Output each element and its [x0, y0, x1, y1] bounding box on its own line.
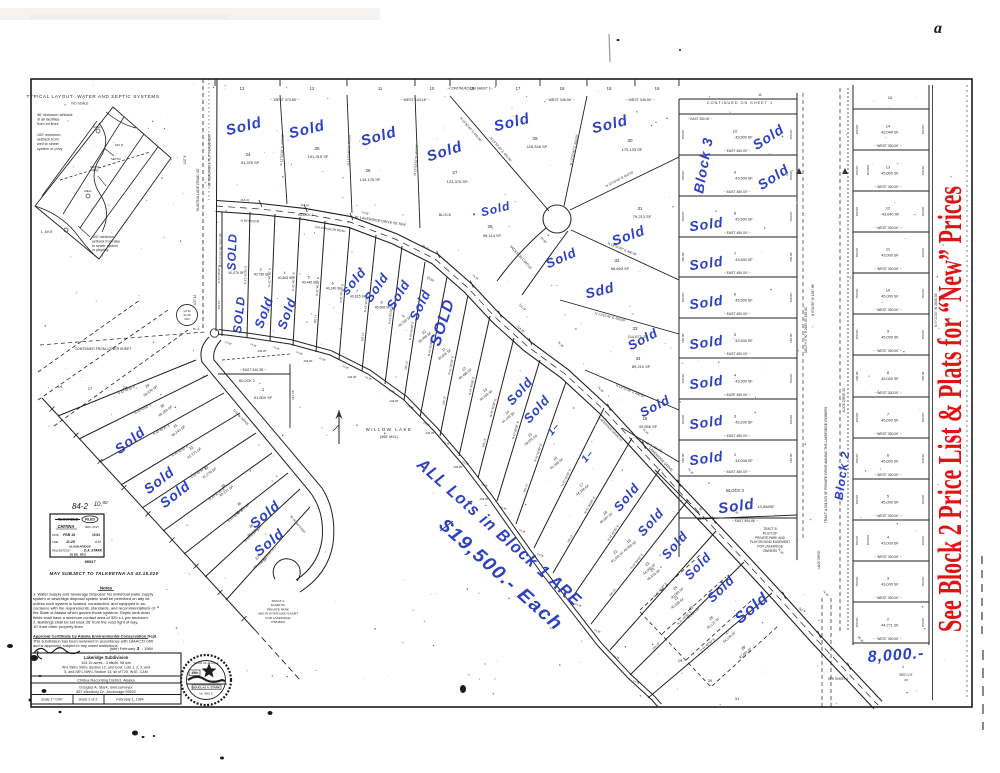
svg-text:~ EAST 450.00' ~: ~ EAST 450.00' ~ [687, 117, 712, 121]
svg-text:BLOCK: BLOCK [439, 213, 452, 217]
svg-text:17: 17 [516, 86, 521, 91]
svg-text:49,556 SF: 49,556 SF [639, 424, 658, 429]
svg-text:SEE LOT: SEE LOT [899, 673, 913, 677]
svg-text:150.00': 150.00' [855, 124, 859, 134]
svg-text:150.00': 150.00' [681, 292, 685, 302]
svg-text:-43,040 SF: -43,040 SF [881, 213, 900, 217]
svg-text:11: 11 [758, 93, 762, 97]
svg-text:~ WEST 300.00' ~: ~ WEST 300.00' ~ [874, 596, 902, 600]
svg-text:8: 8 [381, 300, 383, 304]
svg-text:40,756 SF: 40,756 SF [254, 273, 270, 277]
svg-text:CHITINA: CHITINA [58, 524, 75, 529]
svg-text:N 0°01'30" W 1287.88': N 0°01'30" W 1287.88' [811, 284, 815, 316]
svg-text:10: 10 [430, 86, 435, 91]
svg-text:29: 29 [532, 136, 538, 141]
svg-text:150.00': 150.00' [855, 288, 859, 298]
svg-text:~ WEST 300.00' ~: ~ WEST 300.00' ~ [874, 226, 902, 230]
svg-text:SEPTIC: SEPTIC [111, 157, 121, 161]
svg-text:99517: 99517 [84, 559, 96, 564]
svg-text:28: 28 [487, 224, 493, 229]
svg-text:TIME: TIME [52, 540, 58, 544]
svg-text:150.00': 150.00' [681, 170, 685, 180]
svg-text:~ WEST 143.18' ~: ~ WEST 143.18' ~ [400, 98, 429, 102]
svg-text:4: 4 [284, 271, 286, 275]
svg-text:43,008 SF: 43,008 SF [735, 459, 753, 463]
svg-text:5: 5 [308, 275, 310, 279]
svg-text:10.: 10. [94, 502, 102, 508]
svg-text:43,000 SF: 43,000 SF [881, 254, 899, 258]
svg-text:16: 16 [655, 86, 660, 91]
svg-text:BLOCK: BLOCK [866, 535, 870, 545]
svg-text:43,500 SF: 43,500 SF [735, 299, 753, 303]
svg-text:TRACT B: TRACT B [763, 527, 777, 531]
svg-text:150.00': 150.00' [681, 252, 685, 262]
svg-text:CONTINUED FROM LOWER SHEET: CONTINUED FROM LOWER SHEET [75, 347, 132, 351]
svg-text:150.00': 150.00' [855, 329, 859, 339]
svg-text:WELL: WELL [84, 189, 92, 193]
svg-text:~ EAST 540.38' ~: ~ EAST 540.38' ~ [240, 368, 267, 372]
svg-text:~ EAST 450.00' ~: ~ EAST 450.00' ~ [724, 434, 751, 438]
svg-text:150.00': 150.00' [855, 247, 859, 257]
svg-text:N 41°40'30" E: N 41°40'30" E [267, 268, 272, 287]
svg-text:14: 14 [58, 384, 63, 389]
svg-text:16: 16 [560, 86, 565, 91]
svg-text:10' from other property lines.: 10' from other property lines. [33, 624, 84, 629]
svg-text:10: 10 [886, 288, 891, 293]
svg-text:857 Westbury Dr., Anchorage 99: 857 Westbury Dr., Anchorage 99503 [76, 690, 135, 694]
svg-text:150.00': 150.00' [921, 329, 925, 339]
svg-text:45,000 SF: 45,000 SF [881, 377, 899, 381]
svg-text:150.00': 150.00' [921, 247, 925, 257]
svg-text:to sewer system: to sewer system [92, 244, 118, 248]
svg-text:150.00': 150.00' [855, 576, 859, 586]
svg-text:45,000 SF: 45,000 SF [881, 501, 899, 505]
svg-text:449.35': 449.35' [425, 431, 435, 435]
svg-text:BLOCK: BLOCK [866, 165, 870, 175]
svg-text:, 1984: , 1984 [142, 646, 154, 651]
svg-text:WILLOW LAKE: WILLOW LAKE [366, 427, 413, 432]
svg-text:44,771 SF: 44,771 SF [881, 624, 899, 628]
svg-text:~ EAST 450.00' ~: ~ EAST 450.00' ~ [724, 149, 751, 153]
svg-text:449.35': 449.35' [303, 359, 313, 363]
svg-text:38 BK. REG: 38 BK. REG [70, 553, 87, 557]
svg-text:A.M.: A.M. [95, 540, 102, 544]
svg-text:40,663 SF: 40,663 SF [278, 276, 294, 280]
svg-text:34: 34 [636, 356, 641, 361]
svg-text:MAY SUBJECT TO TALKEETNA AS 4: MAY SUBJECT TO TALKEETNA AS 43.15.020 [50, 571, 159, 576]
svg-text:150.00': 150.00' [921, 617, 925, 627]
svg-text:OWNERS: OWNERS [271, 620, 285, 624]
svg-text:7: 7 [356, 290, 358, 294]
svg-text:5, and NE¼ NW¼ Section 13; all: 5, and NE¼ NW¼ Section 13; all of T25, W… [64, 670, 147, 674]
svg-text:45,673 SF: 45,673 SF [763, 531, 778, 535]
svg-text:150.00': 150.00' [681, 211, 685, 221]
svg-text:OWNERS: OWNERS [763, 549, 777, 553]
svg-text:~ WEST 345.90' ~: ~ WEST 345.90' ~ [625, 98, 654, 102]
svg-text:104.19 acres - 3 tracts, 98 lo: 104.19 acres - 3 tracts, 98 lots [81, 661, 131, 665]
svg-text:LOT 12: LOT 12 [193, 294, 197, 305]
svg-text:SUSITNA LANE ROAD 30': SUSITNA LANE ROAD 30' [196, 168, 200, 211]
svg-text:100' minimum: 100' minimum [92, 235, 114, 239]
svg-text:DOUGLAS A. STARK: DOUGLAS A. STARK [192, 686, 220, 690]
svg-text:43,200 SF: 43,200 SF [735, 421, 753, 425]
svg-text:45,000 SF: 45,000 SF [881, 419, 899, 423]
svg-text:setback from lake: setback from lake [92, 239, 120, 243]
svg-text:118.50': 118.50' [300, 203, 310, 208]
svg-text:45,000 SF: 45,000 SF [881, 336, 899, 340]
svg-text:175,133 SF: 175,133 SF [622, 147, 643, 152]
svg-text:N 41°40'30" E: N 41°40'30" E [217, 265, 221, 284]
svg-text:13: 13 [886, 165, 891, 170]
svg-text:TANK: TANK [91, 168, 98, 172]
svg-text:27: 27 [88, 386, 93, 391]
svg-text:~ EAST 450.00' ~: ~ EAST 450.00' ~ [724, 470, 751, 474]
svg-text:150.00': 150.00' [681, 333, 685, 343]
svg-text:449.35': 449.35' [453, 465, 463, 469]
svg-text:150.00': 150.00' [789, 252, 793, 262]
svg-text:FEB 16: FEB 16 [63, 533, 76, 537]
svg-text:~ EAST 450.00' ~: ~ EAST 450.00' ~ [724, 271, 751, 275]
svg-text:30: 30 [627, 138, 633, 143]
svg-text:150.00': 150.00' [921, 165, 925, 175]
svg-text:32: 32 [614, 258, 620, 263]
svg-text:TRACT A 334,923 SF PRIVATE: TRACT A 334,923 SF PRIVATE DRIVE AMONG T… [824, 406, 828, 523]
svg-text:343.18': 343.18' [291, 390, 295, 400]
svg-text:98,114 SF: 98,114 SF [483, 233, 502, 238]
svg-text:84-2: 84-2 [72, 502, 89, 511]
svg-text:~ WEST 300.00' ~: ~ WEST 300.00' ~ [874, 637, 902, 641]
svg-text:~ WEST 300.00' ~: ~ WEST 300.00' ~ [874, 391, 902, 395]
svg-text:100' minimum: 100' minimum [37, 133, 61, 137]
svg-text:(title) February: (title) February [110, 646, 135, 651]
svg-text:SOLD: SOLD [224, 233, 239, 271]
svg-text:BLOCK 1: BLOCK 1 [298, 213, 313, 217]
svg-text:~ WEST 300.00' ~: ~ WEST 300.00' ~ [874, 308, 902, 312]
svg-text:PLAYGROUND EASEMENT: PLAYGROUND EASEMENT [750, 540, 791, 544]
svg-text:43,500 SF: 43,500 SF [735, 258, 753, 262]
svg-text:and is approved, subject to an: and is approved, subject to any noted re… [33, 643, 119, 648]
svg-text:10: 10 [733, 129, 738, 134]
svg-text:14: 14 [886, 124, 891, 129]
svg-text:40': 40' [904, 678, 908, 682]
svg-text:a: a [934, 20, 942, 37]
svg-text:~ EAST 450.00' ~: ~ EAST 450.00' ~ [724, 393, 751, 397]
svg-text:~ WEST 300.00' ~: ~ WEST 300.00' ~ [874, 555, 902, 559]
svg-text:30' ROAD AND UTILITY EASEMENT: 30' ROAD AND UTILITY EASEMENT [208, 134, 212, 187]
svg-text:150.00': 150.00' [789, 211, 793, 221]
svg-text:165.13': 165.13' [217, 300, 221, 310]
svg-text:150.00': 150.00' [921, 288, 925, 298]
svg-text:No. 4981-S: No. 4981-S [199, 692, 212, 696]
svg-text:W½ SW¼ SW¼ Section 12; and Gov: W½ SW¼ SW¼ Section 12; and Govt. Lots 1,… [62, 666, 150, 670]
svg-text:91,229 SF: 91,229 SF [241, 160, 260, 165]
svg-text:449.35': 449.35' [257, 349, 267, 353]
svg-text:LAKE DRIVE: LAKE DRIVE [817, 551, 821, 570]
svg-text:150.00': 150.00' [681, 373, 685, 383]
svg-text:150.00': 150.00' [855, 453, 859, 463]
svg-text:from lot lines: from lot lines [37, 122, 59, 126]
svg-text:43,500 SF: 43,500 SF [735, 218, 753, 222]
svg-text:43,500 SF: 43,500 SF [735, 339, 753, 343]
svg-text:L AKE: L AKE [41, 230, 53, 234]
svg-text:11: 11 [378, 86, 383, 91]
svg-text:43,040 SF: 43,040 SF [881, 131, 899, 135]
svg-text:30C: 30C [184, 317, 190, 321]
svg-text:45,000 SF: 45,000 SF [881, 460, 899, 464]
svg-text:318.33': 318.33' [240, 198, 250, 202]
svg-text:26: 26 [365, 168, 371, 173]
svg-text:13: 13 [240, 86, 245, 91]
svg-text:12: 12 [886, 206, 891, 211]
svg-text:79,213 SF: 79,213 SF [633, 214, 652, 219]
svg-text:31: 31 [735, 696, 740, 701]
svg-text:45,000 SF: 45,000 SF [881, 172, 899, 176]
svg-text:6: 6 [332, 281, 334, 285]
svg-text:25: 25 [314, 146, 320, 151]
svg-text:150.00': 150.00' [855, 165, 859, 175]
svg-text:150.00': 150.00' [921, 576, 925, 586]
svg-text:~ WEST 300.00' ~: ~ WEST 300.00' ~ [874, 432, 902, 436]
svg-text:31: 31 [637, 206, 643, 211]
svg-text:~ WEST 300.00' ~: ~ WEST 300.00' ~ [874, 144, 902, 148]
svg-text:165.13': 165.13' [313, 314, 318, 324]
svg-text:150.00': 150.00' [789, 129, 793, 139]
svg-text:D.A. STARK: D.A. STARK [84, 549, 103, 553]
svg-text:~ WEST 373.68' ~: ~ WEST 373.68' ~ [270, 98, 299, 102]
svg-text:~ WEST 345.96' ~: ~ WEST 345.96' ~ [545, 98, 574, 102]
svg-text:33: 33 [632, 326, 638, 331]
svg-text:43,500 SF: 43,500 SF [735, 177, 753, 181]
svg-text:~ EAST 450.00' ~: ~ EAST 450.00' ~ [724, 231, 751, 235]
svg-text:89,210 SF: 89,210 SF [632, 364, 651, 369]
svg-text:15: 15 [607, 86, 612, 91]
svg-text:FILED: FILED [85, 518, 95, 522]
svg-text:TYPICAL LAYOUT· WATER AND SEPT: TYPICAL LAYOUT· WATER AND SEPTIC SYSTEMS [27, 94, 160, 99]
svg-text:28: 28 [123, 385, 128, 390]
svg-text:45,000 SF: 45,000 SF [881, 295, 899, 299]
svg-text:REC. DIST: REC. DIST [85, 525, 99, 529]
svg-text:SEE SHEET 1: SEE SHEET 1 [828, 677, 849, 681]
svg-text:7b. A: 7b. A [193, 327, 200, 331]
svg-text:~ EAST 594.86' ~: ~ EAST 594.86' ~ [732, 519, 759, 523]
svg-text:REQUESTED BY: REQUESTED BY [52, 550, 71, 553]
svg-text:15: 15 [888, 95, 893, 100]
svg-text:~ EAST 450.00' ~: ~ EAST 450.00' ~ [724, 312, 751, 316]
svg-text:PRIVATE PARK AND: PRIVATE PARK AND [755, 536, 786, 540]
svg-text:150.00': 150.00' [789, 373, 793, 383]
svg-text:Douglas A. Stark, land surveyo: Douglas A. Stark, land surveyor [79, 686, 133, 690]
svg-text:WELL: WELL [93, 125, 101, 129]
svg-text:134,176 SF: 134,176 SF [360, 177, 381, 182]
svg-text:150.00': 150.00' [789, 292, 793, 302]
svg-text:449.35': 449.35' [347, 375, 357, 379]
svg-text:sheet 2 of 2: sheet 2 of 2 [79, 698, 98, 702]
svg-text:150.00': 150.00' [855, 617, 859, 627]
svg-text:100' R: 100' R [115, 143, 124, 147]
svg-text:150.00': 150.00' [921, 453, 925, 463]
svg-text:43,000 SF: 43,000 SF [881, 583, 899, 587]
svg-text:43,500 SF: 43,500 SF [735, 380, 753, 384]
svg-text:24: 24 [245, 152, 251, 157]
svg-text:CONTINUED ON SHEET 1: CONTINUED ON SHEET 1 [707, 101, 773, 105]
svg-text:123,375 SF: 123,375 SF [447, 179, 468, 184]
svg-text:449.35': 449.35' [389, 399, 399, 403]
svg-text:system or privy: system or privy [37, 147, 63, 151]
svg-text:well to sewer: well to sewer [37, 142, 60, 146]
svg-text:~ EAST 450.00' ~: ~ EAST 450.00' ~ [724, 352, 751, 356]
svg-text:Lakeridge Subdivision: Lakeridge Subdivision [84, 655, 129, 660]
svg-text:51,809 SF: 51,809 SF [254, 395, 273, 400]
svg-text:13,848SF: 13,848SF [757, 504, 775, 509]
svg-text:150.00': 150.00' [921, 535, 925, 545]
svg-text:30: 30 [708, 678, 713, 683]
svg-text:LOT 6: LOT 6 [183, 155, 187, 164]
svg-text:of all facilities: of all facilities [37, 118, 60, 122]
svg-text:101,315 SF: 101,315 SF [308, 154, 329, 159]
svg-text:19: 19 [470, 86, 475, 91]
svg-text:150.00': 150.00' [681, 453, 685, 463]
svg-text:36' minimum setback: 36' minimum setback [37, 113, 73, 117]
svg-text:11:25: 11:25 [66, 540, 76, 544]
svg-text:SOUTH 0°30' E 2635.35' 165.8: SOUTH 0°30' E 2635.35' 165.80' [804, 306, 808, 353]
svg-text:150.00': 150.00' [855, 371, 859, 381]
svg-text:See Block 2 Price List & Plats: See Block 2 Price List & Plats for “New”… [932, 186, 969, 632]
svg-text:BLOCK 2: BLOCK 2 [239, 379, 255, 383]
svg-text:STATE OF ALASKA: STATE OF ALASKA [194, 661, 219, 665]
svg-text:ALICE DRIVE 30': ALICE DRIVE 30' [842, 387, 846, 412]
svg-text:27: 27 [452, 170, 458, 175]
svg-text:150.00': 150.00' [921, 412, 925, 422]
svg-text:150.00': 150.00' [855, 535, 859, 545]
svg-text:Chitina Recording District, Al: Chitina Recording District, Alaska [77, 678, 135, 683]
svg-text:150.00': 150.00' [681, 129, 685, 139]
svg-text:00: 00 [102, 500, 108, 505]
svg-text:~ WEST 300.00' ~: ~ WEST 300.00' ~ [874, 267, 902, 271]
svg-text:49th: 49th [192, 671, 199, 675]
svg-text:~ EAST 450.00' ~: ~ EAST 450.00' ~ [724, 190, 751, 194]
svg-text:12: 12 [310, 86, 315, 91]
svg-text:150.00': 150.00' [789, 333, 793, 343]
svg-text:150.00': 150.00' [855, 206, 859, 216]
svg-text:NO SCALE: NO SCALE [71, 102, 89, 106]
svg-text:29: 29 [678, 658, 683, 663]
svg-text:~ WEST 300.00' ~: ~ WEST 300.00' ~ [874, 514, 902, 518]
svg-text:~ WEST 300.00' ~: ~ WEST 300.00' ~ [874, 349, 902, 353]
svg-text:150.00': 150.00' [921, 371, 925, 381]
svg-text:scale 1"=100': scale 1"=100' [41, 698, 63, 702]
svg-text:setback from: setback from [37, 138, 59, 142]
svg-text:150.00': 150.00' [681, 414, 685, 424]
svg-text:19 84: 19 84 [92, 533, 100, 537]
svg-text:3: 3 [137, 646, 140, 652]
svg-text:February 1, 1984: February 1, 1984 [116, 698, 143, 702]
svg-text:150.00': 150.00' [855, 494, 859, 504]
svg-text:DATE: DATE [52, 533, 59, 537]
svg-text:3: 3 [260, 268, 262, 272]
svg-text:116,346 SF: 116,346 SF [527, 144, 548, 149]
svg-text:150.00': 150.00' [921, 206, 925, 216]
svg-text:150.00': 150.00' [921, 124, 925, 134]
svg-text:(365' MSL): (365' MSL) [380, 435, 399, 439]
svg-text:150.00': 150.00' [921, 494, 925, 504]
svg-text:Notes: Notes [100, 586, 113, 591]
svg-text:BLOCK 3: BLOCK 3 [726, 488, 744, 493]
svg-text:150.00': 150.00' [855, 412, 859, 422]
svg-text:66,693 SF: 66,693 SF [611, 266, 630, 271]
svg-text:150.00': 150.00' [789, 453, 793, 463]
svg-text:150.00': 150.00' [789, 414, 793, 424]
svg-text:43,000 SF: 43,000 SF [881, 542, 899, 546]
svg-text:~ WEST 300.00' ~: ~ WEST 300.00' ~ [874, 473, 902, 477]
svg-text:~ WEST 300.00' ~: ~ WEST 300.00' ~ [874, 185, 902, 189]
svg-text:40,445 SF: 40,445 SF [302, 280, 318, 284]
svg-text:449.35': 449.35' [479, 497, 489, 501]
